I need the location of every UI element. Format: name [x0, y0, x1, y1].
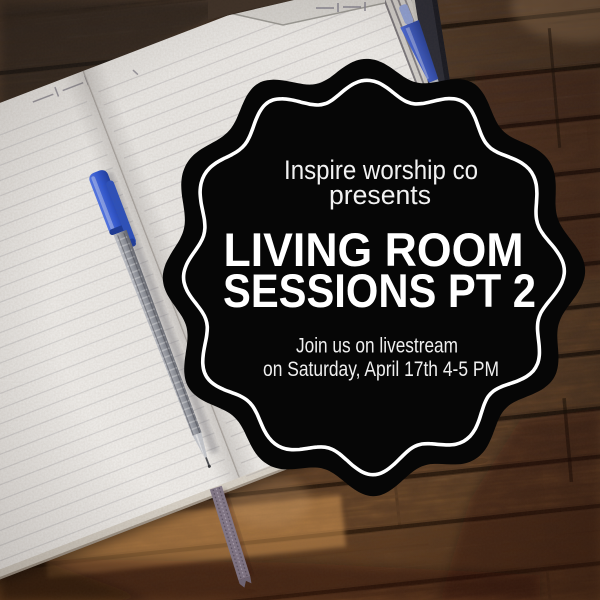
svg-text:on Saturday, April 17th 4-5 PM: on Saturday, April 17th 4-5 PM [263, 358, 499, 381]
svg-text:SESSIONS PT 2: SESSIONS PT 2 [223, 265, 536, 318]
svg-text:Join us on livestream: Join us on livestream [296, 335, 458, 358]
svg-text:presents: presents [329, 180, 431, 210]
